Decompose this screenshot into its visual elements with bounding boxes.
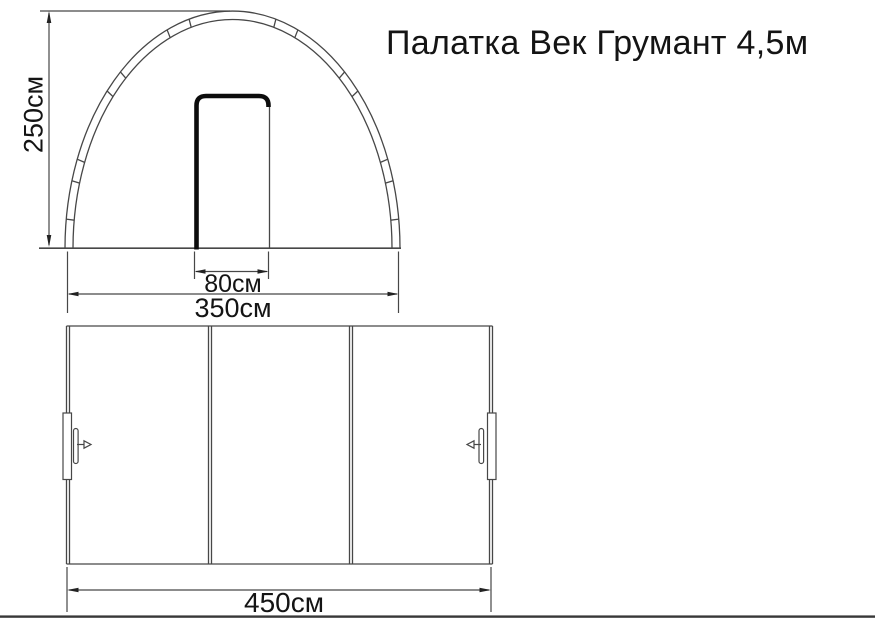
height-arrow-up bbox=[47, 11, 52, 23]
width-dimension-label: 350см bbox=[183, 295, 283, 322]
front-view-drawing bbox=[39, 11, 401, 313]
door-thick-edge bbox=[197, 96, 269, 250]
tent-body-outline bbox=[67, 326, 493, 564]
arch-frame-outline bbox=[65, 11, 400, 248]
width-arrow-left bbox=[68, 292, 79, 297]
zipper-right-arrow-head bbox=[467, 441, 474, 448]
zipper-left-arrow-head bbox=[84, 441, 91, 448]
zipper-right-flap bbox=[488, 413, 497, 480]
height-dimension bbox=[40, 11, 230, 247]
zipper-right-icon bbox=[467, 413, 496, 480]
length-dimension-label: 450см bbox=[229, 589, 339, 617]
side-view-drawing bbox=[63, 326, 496, 612]
zipper-right-slider bbox=[479, 429, 484, 464]
tent-diagram-page: Палатка Век Грумант 4,5м 250см 80см 350с… bbox=[0, 0, 875, 618]
height-arrow-down bbox=[47, 235, 52, 247]
diagram-title: Палатка Век Грумант 4,5м bbox=[386, 26, 808, 60]
arch-outer-line bbox=[65, 11, 400, 248]
length-arrow-right bbox=[480, 588, 492, 593]
tent-diagram-drawing bbox=[0, 0, 875, 618]
zipper-left-slider bbox=[74, 429, 79, 464]
arch-inner-line bbox=[73, 20, 392, 249]
zipper-left-flap bbox=[63, 413, 72, 480]
photo-bottom-edge bbox=[0, 615, 875, 617]
door-opening-outline bbox=[197, 96, 270, 250]
height-dimension-label: 250см bbox=[21, 74, 48, 156]
length-arrow-left bbox=[67, 588, 79, 593]
width-arrow-right bbox=[388, 292, 399, 297]
hoop-lines bbox=[67, 326, 493, 564]
pole-segment-ticks bbox=[66, 19, 399, 220]
zipper-left-icon bbox=[63, 413, 91, 480]
